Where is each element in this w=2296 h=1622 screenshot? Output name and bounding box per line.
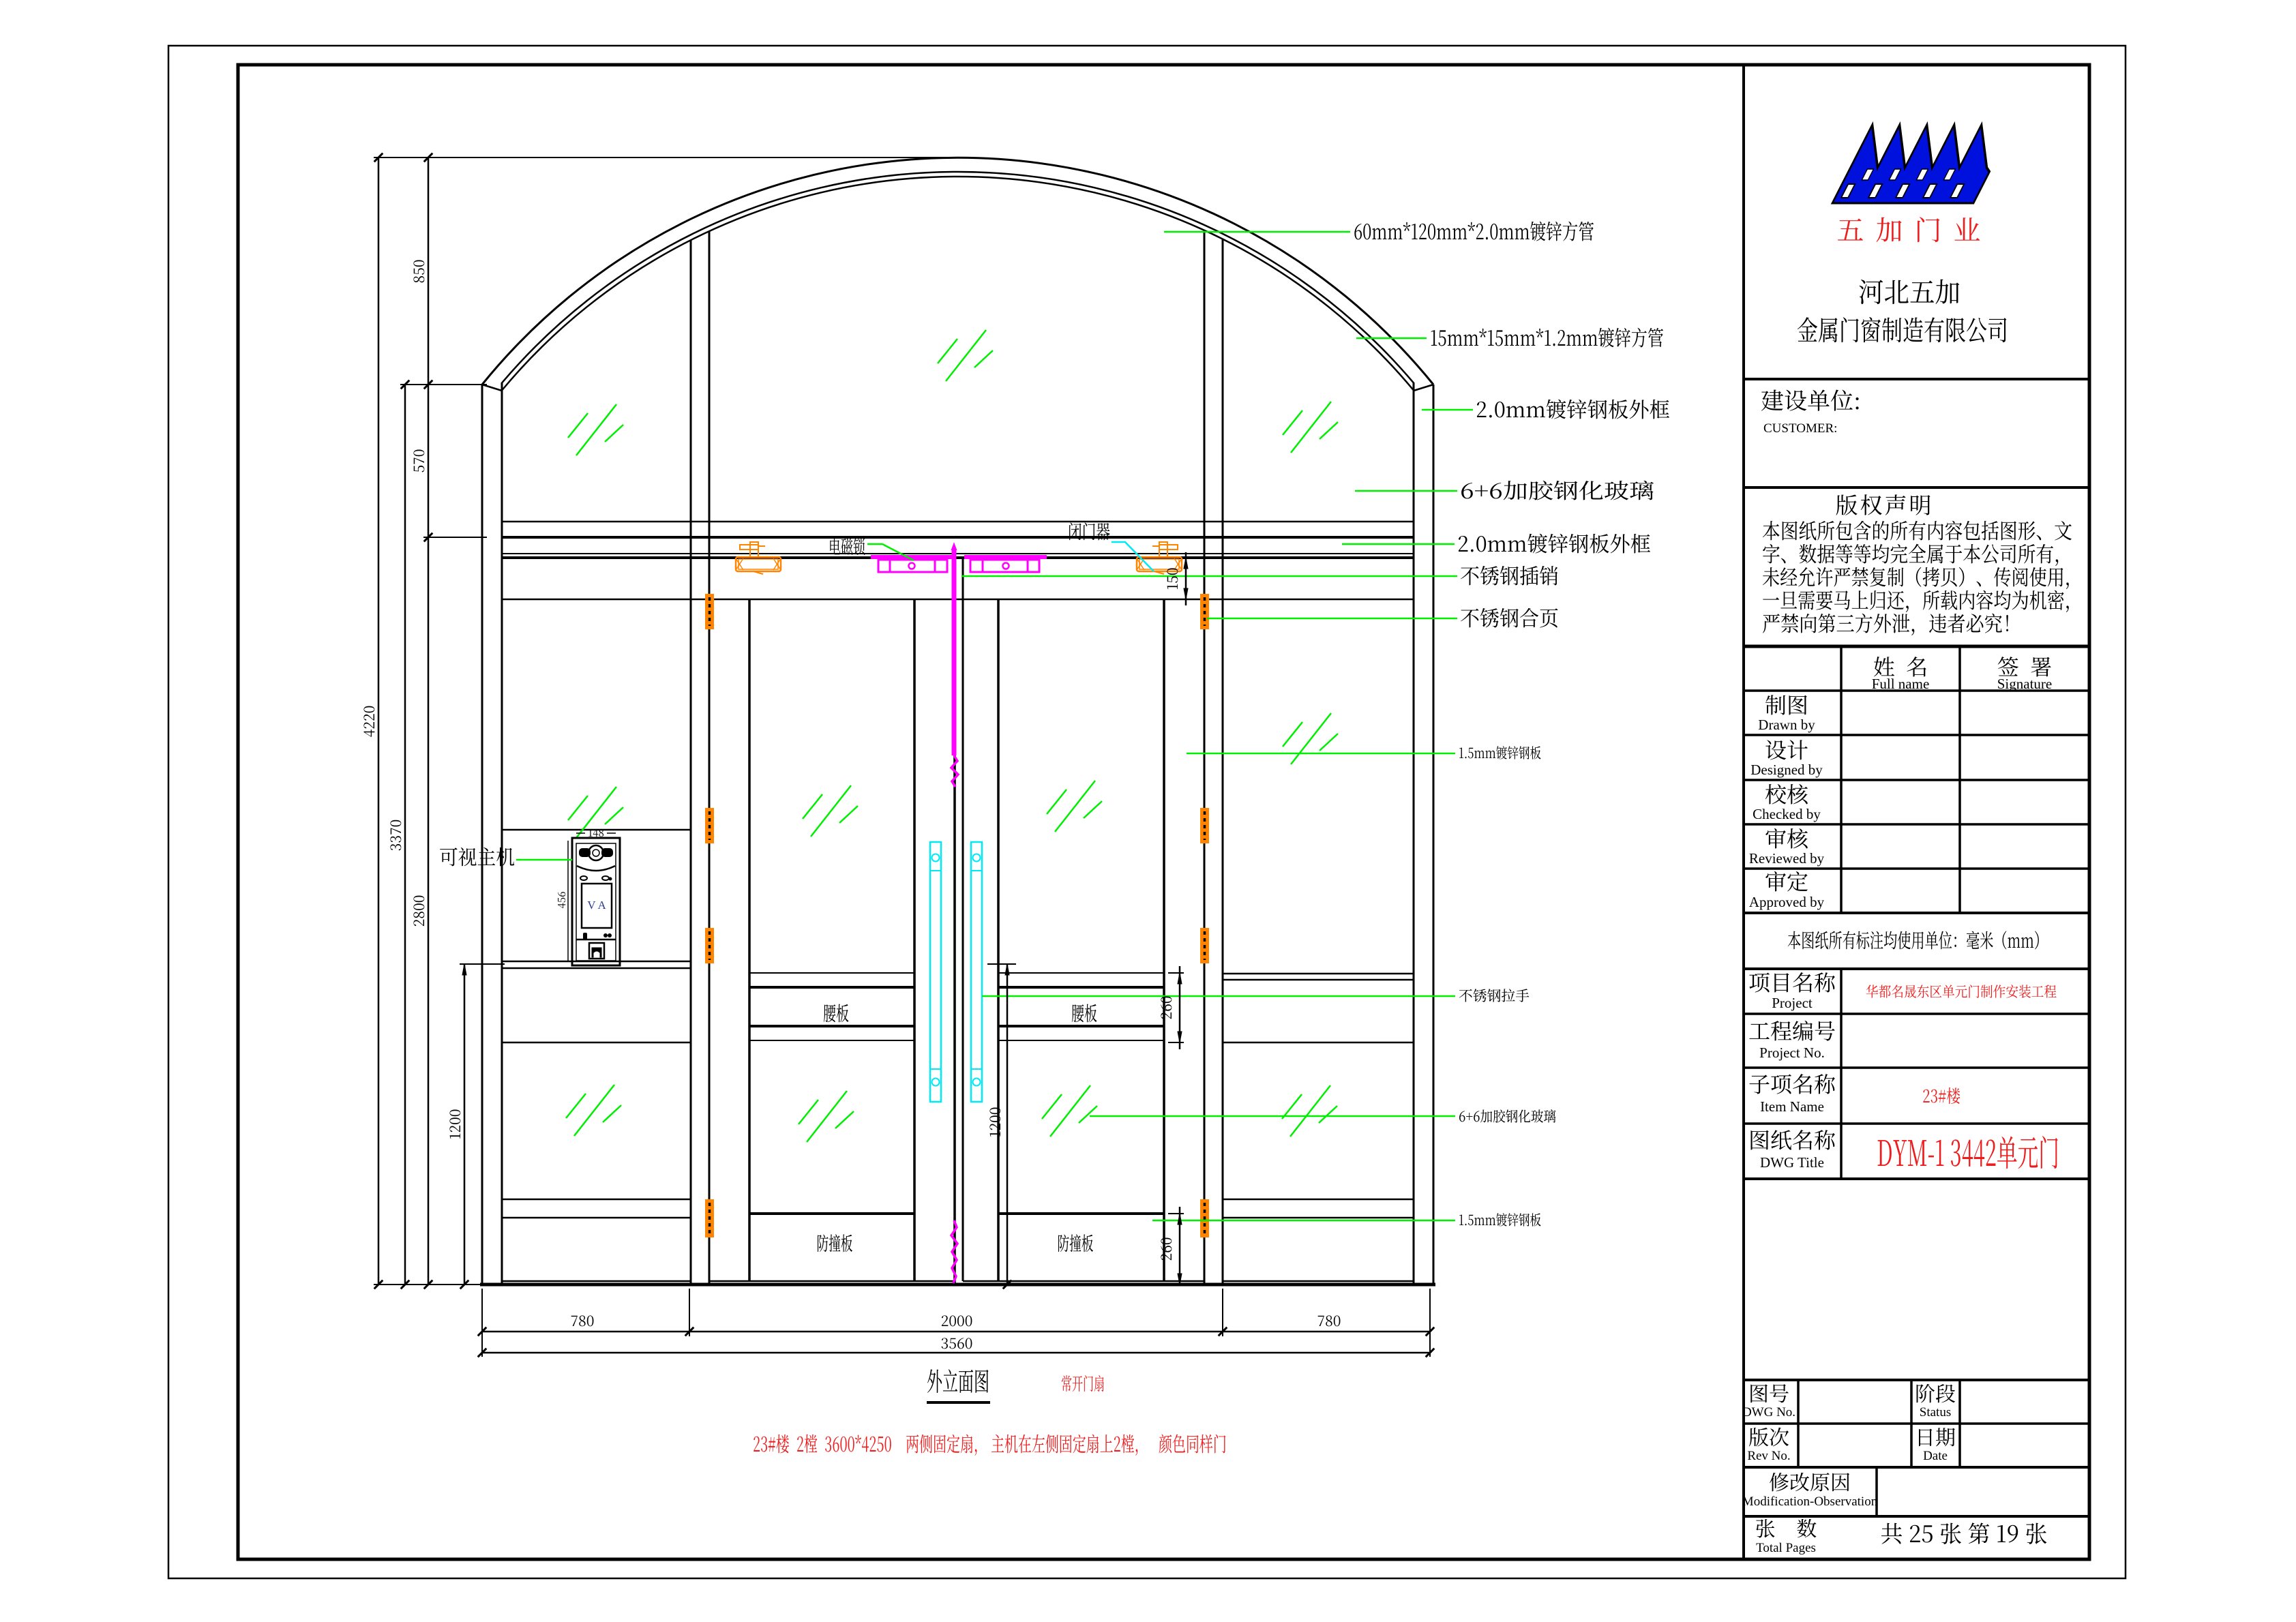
svg-text:DWG Title: DWG Title: [1760, 1154, 1824, 1171]
svg-text:Checked by: Checked by: [1753, 806, 1821, 822]
svg-text:Reviewed by: Reviewed by: [1749, 850, 1825, 867]
svg-text:Project: Project: [1772, 995, 1813, 1011]
svg-text:V A: V A: [587, 899, 606, 912]
svg-text:Full name: Full name: [1872, 676, 1930, 692]
svg-text:Modification-Observation: Modification-Observation: [1742, 1495, 1878, 1509]
svg-text:Designed by: Designed by: [1750, 762, 1823, 778]
svg-text:CUSTOMER:: CUSTOMER:: [1763, 421, 1837, 436]
svg-text:Status: Status: [1920, 1405, 1951, 1420]
svg-text:DWG No.: DWG No.: [1742, 1405, 1795, 1420]
svg-text:Date: Date: [1923, 1449, 1948, 1463]
svg-text:Rev No.: Rev No.: [1747, 1449, 1790, 1463]
svg-text:Item Name: Item Name: [1760, 1098, 1824, 1115]
svg-text:Total Pages: Total Pages: [1756, 1541, 1816, 1555]
svg-text:Signature: Signature: [1997, 676, 2052, 692]
svg-text:Drawn by: Drawn by: [1758, 717, 1815, 733]
svg-text:Approved by: Approved by: [1749, 894, 1825, 910]
svg-text:Project No.: Project No.: [1759, 1045, 1825, 1061]
